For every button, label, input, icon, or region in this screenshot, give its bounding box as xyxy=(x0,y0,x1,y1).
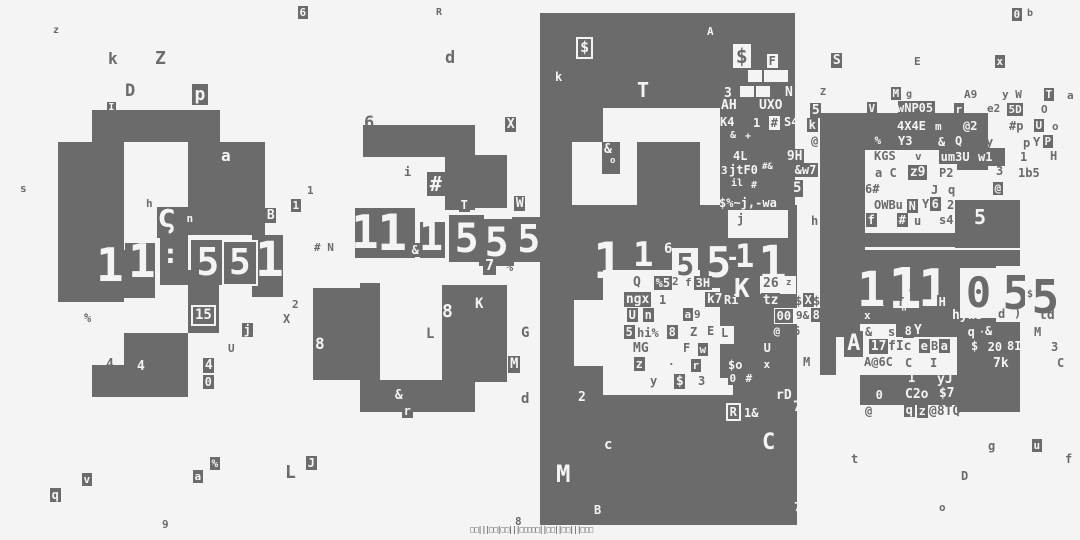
blob-1-block xyxy=(92,110,220,142)
glyph: 1 xyxy=(419,217,443,257)
blob-3-block xyxy=(637,142,700,208)
glyph: E xyxy=(707,325,714,337)
glyph: S xyxy=(875,249,882,261)
glyph: 00 xyxy=(775,309,793,323)
glyph: T xyxy=(459,198,470,212)
glyph: C2o xyxy=(905,388,928,401)
glyph: % xyxy=(210,457,220,470)
glyph: 4 xyxy=(203,358,214,373)
glyph: z xyxy=(53,26,59,36)
glyph: s xyxy=(20,183,27,194)
glyph: O xyxy=(1041,104,1048,115)
glyph: Q xyxy=(955,135,962,147)
glyph: & xyxy=(730,131,736,141)
glyph: il xyxy=(731,179,743,189)
glyph: #& xyxy=(762,163,773,172)
glyph: 1b5 xyxy=(1018,167,1040,179)
glyph: i xyxy=(404,166,411,178)
glyph: ngx xyxy=(624,292,651,307)
glyph: a xyxy=(939,339,950,353)
glyph: T xyxy=(1044,88,1054,101)
glyph: Z xyxy=(690,326,697,338)
glyph: @2 xyxy=(963,120,977,132)
glyph: 1 xyxy=(753,117,760,129)
glyph: 9& xyxy=(796,310,809,321)
glyph: % xyxy=(873,134,883,147)
glyph: b xyxy=(1027,9,1033,19)
glyph: @ xyxy=(865,405,872,417)
glyph: jtF0 xyxy=(729,164,758,176)
glyph: 1 xyxy=(96,242,124,288)
glyph: X xyxy=(803,293,814,307)
glyph: F xyxy=(882,295,889,307)
glyph: h xyxy=(146,198,153,209)
blob-4-block xyxy=(820,233,1020,247)
glyph: C xyxy=(762,432,775,454)
glyph: K4 xyxy=(720,116,734,128)
glyph: MG xyxy=(633,342,649,355)
glyph: d xyxy=(521,392,529,406)
glyph: @ xyxy=(993,182,1003,195)
glyph: W xyxy=(514,196,525,211)
glyph: Y xyxy=(1033,136,1040,148)
glyph: · xyxy=(668,359,675,370)
glyph: 9 xyxy=(162,519,169,530)
glyph: um3U xyxy=(939,150,971,164)
glyph: t xyxy=(851,453,858,465)
glyph: J xyxy=(306,456,317,470)
glyph: hi% xyxy=(637,327,659,339)
glyph: A@6C xyxy=(864,356,893,368)
glyph: 15 xyxy=(193,307,214,324)
glyph: A xyxy=(707,26,714,37)
glyph: KGS xyxy=(874,150,896,162)
glyph: 6 xyxy=(298,6,308,19)
glyph: S xyxy=(831,53,842,68)
glyph: d xyxy=(445,50,455,67)
glyph: j xyxy=(737,213,744,225)
glyph: k xyxy=(108,51,118,67)
glyph: 8 xyxy=(315,336,325,352)
glyph: # xyxy=(744,372,754,385)
glyph: OWBu xyxy=(874,199,903,211)
glyph: & xyxy=(865,326,872,338)
glyph: 1 xyxy=(377,208,407,258)
glyph: 5 xyxy=(810,103,821,118)
glyph: h xyxy=(811,215,818,227)
glyph: R xyxy=(728,405,739,419)
glyph: Y xyxy=(914,324,922,337)
glyph: #p xyxy=(1009,120,1023,132)
glyph: 3 xyxy=(1051,341,1058,353)
glyph: a xyxy=(221,148,231,164)
glyph: 2 xyxy=(578,391,586,404)
glyph: @8TQ xyxy=(929,405,960,418)
glyph: q xyxy=(50,488,61,502)
glyph: y xyxy=(986,136,993,148)
glyph: j xyxy=(242,323,253,337)
glyph: AH xyxy=(721,99,737,112)
glyph: 8 xyxy=(442,303,453,321)
glyph: $ xyxy=(813,295,820,307)
glyph: r xyxy=(954,103,964,116)
glyph: U xyxy=(762,341,773,355)
glyph: U xyxy=(1034,119,1044,132)
glyph: X xyxy=(283,313,290,325)
glyph: D xyxy=(961,470,968,482)
glyph: J xyxy=(931,184,938,196)
glyph: k7 xyxy=(705,292,724,307)
glyph: s xyxy=(888,326,895,338)
glyph: H xyxy=(937,295,948,309)
glyph: 6 xyxy=(793,325,800,337)
glyph: 7 xyxy=(793,400,801,414)
glyph: k xyxy=(807,118,818,132)
glyph: %5 xyxy=(654,276,672,290)
glyph: 1 xyxy=(908,372,915,384)
blob-2-block xyxy=(475,155,507,208)
glyph: 1 xyxy=(633,238,653,272)
glyph: o xyxy=(939,502,946,513)
glyph: I xyxy=(107,102,116,114)
glyph: 1 xyxy=(1020,151,1027,163)
glyph: U xyxy=(627,308,638,322)
glyph: & xyxy=(985,325,992,337)
glyph: M xyxy=(891,87,901,100)
white-patch xyxy=(603,378,733,395)
glyph: 0 xyxy=(728,372,738,385)
glyph: a xyxy=(1067,90,1074,101)
white-patch xyxy=(748,70,762,82)
glyph: hywJ xyxy=(952,309,983,322)
glyph: 5 xyxy=(791,180,803,197)
glyph: $ xyxy=(578,39,591,57)
glyph: $ xyxy=(674,374,685,389)
glyph: 5 xyxy=(624,325,635,339)
glyph: 1& xyxy=(744,407,758,419)
glyph: k xyxy=(555,71,562,83)
glyph: z9 xyxy=(908,165,927,180)
glyph: & xyxy=(938,136,945,148)
glyph: 1 xyxy=(351,209,379,255)
glyph: g xyxy=(988,440,995,452)
glyph: p xyxy=(192,84,208,105)
glyph: # xyxy=(427,172,445,196)
glyph: R xyxy=(436,8,442,18)
glyph: K xyxy=(475,297,483,311)
glyph: 7k xyxy=(993,357,1009,370)
glyph: L xyxy=(285,464,296,482)
glyph: y W xyxy=(1002,89,1022,100)
white-patch xyxy=(756,86,770,97)
glyph: B xyxy=(265,208,276,223)
glyph: 4L xyxy=(733,150,747,162)
glyph: # xyxy=(751,181,757,191)
white-patch xyxy=(764,70,788,82)
glyph: d xyxy=(998,308,1005,320)
glyph: I xyxy=(930,357,937,369)
glyph: V xyxy=(867,102,877,115)
glyph: z xyxy=(786,279,791,288)
glyph: @ xyxy=(772,325,782,338)
glyph: u xyxy=(914,215,921,227)
glyph: wNP05 xyxy=(897,102,933,114)
glyph: F xyxy=(767,54,778,68)
glyph: c xyxy=(466,137,473,148)
glyph: 20 xyxy=(986,340,1004,354)
glyph: # N xyxy=(314,242,334,253)
glyph: 6 xyxy=(930,197,941,211)
glyph: w1 xyxy=(978,151,992,163)
glyph: E xyxy=(914,56,921,67)
glyph: rD xyxy=(776,389,792,402)
glyph: x xyxy=(995,55,1005,68)
glyph: Y3 xyxy=(898,135,912,147)
glyph: z xyxy=(917,404,928,418)
glyph: q xyxy=(904,403,915,417)
glyph: 5 xyxy=(191,240,225,285)
glyph: e xyxy=(919,339,930,353)
glyph: x xyxy=(762,358,772,371)
glyph: 8 xyxy=(811,308,822,322)
glyph: ) xyxy=(1014,307,1021,319)
glyph: 3 xyxy=(721,165,728,176)
glyph: 1 xyxy=(255,236,284,284)
glyph: C xyxy=(905,357,912,369)
blob-3-block xyxy=(540,390,720,525)
glyph: % xyxy=(84,312,91,324)
glyph: Z xyxy=(155,50,166,68)
glyph: c xyxy=(604,438,612,452)
glyph: a C xyxy=(875,167,897,179)
glyph: yJ xyxy=(937,373,953,386)
glyph: L xyxy=(721,327,728,339)
glyph: 5 xyxy=(512,217,546,262)
glyph: e xyxy=(777,357,784,368)
glyph: + xyxy=(745,132,751,142)
glyph: & xyxy=(604,143,612,156)
glyph: 17 xyxy=(869,339,888,354)
glyph: f xyxy=(866,213,877,227)
glyph: 4 xyxy=(137,360,145,373)
glyph: B xyxy=(931,340,938,352)
glyph: p xyxy=(1023,137,1030,149)
glyph: 5D xyxy=(1007,103,1023,116)
white-patch xyxy=(740,86,754,97)
glyph: 3 xyxy=(698,375,705,387)
glyph: r xyxy=(402,404,413,418)
glyph: $ xyxy=(1027,290,1033,300)
glyph: C xyxy=(1057,357,1064,369)
glyph: a xyxy=(683,308,693,321)
glyph: : xyxy=(162,240,179,268)
glyph: z xyxy=(634,357,645,371)
glyph: M xyxy=(1034,326,1041,338)
glyph: 26 xyxy=(763,277,779,290)
glyph: 1 xyxy=(291,199,301,212)
glyph: $ xyxy=(733,44,751,68)
glyph: 5 xyxy=(974,207,986,227)
glyph: Y xyxy=(922,198,929,210)
glyph: $o xyxy=(728,359,742,371)
glyph: 8 xyxy=(786,342,793,354)
glyph: r xyxy=(891,281,897,291)
glyph: 1 xyxy=(735,240,754,272)
glyph: 2 xyxy=(292,299,299,310)
glyph: # xyxy=(897,213,908,227)
glyph: $ xyxy=(795,295,802,307)
glyph: S41 xyxy=(784,116,806,128)
glyph: Z xyxy=(820,88,826,98)
glyph: 3 xyxy=(996,165,1003,177)
glyph: e xyxy=(458,153,465,164)
glyph: fIc xyxy=(888,340,911,353)
glyph: w xyxy=(698,343,708,356)
glyph: H xyxy=(1050,150,1057,162)
glyph: x xyxy=(864,310,871,321)
glyph: q xyxy=(966,325,977,339)
blob-3-block xyxy=(572,108,603,142)
glyph: 1 xyxy=(128,238,156,284)
glyph: 8 xyxy=(667,325,678,339)
glyph: & xyxy=(410,243,421,257)
glyph: tz xyxy=(761,293,780,308)
glyph: Q xyxy=(633,276,641,289)
glyph: s4 xyxy=(939,214,953,226)
glyph: Ri xyxy=(724,294,738,306)
glyph: L xyxy=(426,327,434,341)
glyph: 6# xyxy=(865,183,879,195)
glyph: td xyxy=(1039,309,1055,322)
glyph: v xyxy=(82,473,92,486)
glyph: F xyxy=(683,342,690,354)
glyph: &w7 xyxy=(793,163,818,177)
glyph: M xyxy=(803,356,810,368)
glyph: 7 xyxy=(794,501,801,513)
glyph: 5 xyxy=(224,242,256,284)
glyph: 8I xyxy=(1007,340,1021,352)
glyph: o xyxy=(610,157,615,166)
glyph: 0 xyxy=(874,388,885,402)
glyph: X xyxy=(505,117,516,132)
glyph: U xyxy=(228,343,235,354)
blob-2-block xyxy=(360,283,380,382)
glyph: e2 xyxy=(987,103,1000,114)
barcode-strip: □□|||□□|□□|||□□□□□||□□||□□|||□□□ xyxy=(470,526,592,534)
glyph: f xyxy=(1065,453,1072,465)
glyph: 4 xyxy=(106,358,114,371)
glyph: g xyxy=(906,90,912,100)
glyph: D xyxy=(125,83,135,100)
glyph: P xyxy=(1043,135,1053,148)
glyph: 4X4E xyxy=(897,120,926,132)
glyph: 6 xyxy=(364,115,374,132)
glyph: T xyxy=(637,80,649,100)
glyph: r xyxy=(691,359,701,372)
glyph: $ xyxy=(971,340,978,352)
glyph: G xyxy=(521,326,529,340)
blob-3-block xyxy=(540,108,572,208)
glyph: # xyxy=(769,116,780,130)
glyph: & xyxy=(393,388,404,403)
glyph: n xyxy=(643,308,654,322)
glyph: " xyxy=(901,308,907,318)
glyph: 0 xyxy=(1012,8,1022,21)
glyph: u xyxy=(1032,439,1042,452)
glyph: UXO xyxy=(759,99,782,112)
glyph: m xyxy=(935,121,942,132)
glyph: 2 xyxy=(947,199,954,211)
glyph: q xyxy=(948,184,955,196)
glyph: o xyxy=(1052,121,1059,132)
glyph: M xyxy=(508,356,520,373)
noise-canvas: z6R0bA$$kZdFSExkTDp3NZMgA9y WTaAHUXOVwNP… xyxy=(0,0,1080,540)
glyph: B xyxy=(594,504,601,516)
white-patch xyxy=(574,300,604,366)
glyph: n xyxy=(185,212,195,225)
glyph: 0 xyxy=(203,375,214,389)
glyph: @ xyxy=(811,135,818,147)
glyph: 3H xyxy=(694,276,712,290)
glyph: 2 xyxy=(672,276,679,287)
glyph: % xyxy=(506,261,513,273)
glyph: $7 xyxy=(937,386,956,401)
glyph: a xyxy=(193,470,203,483)
glyph: 1 xyxy=(307,185,314,196)
glyph: N xyxy=(907,199,918,213)
glyph: 1 xyxy=(593,236,623,286)
glyph: v xyxy=(915,151,922,162)
glyph: 1 xyxy=(659,294,666,306)
glyph: A9 xyxy=(964,89,977,100)
blob-2-block xyxy=(360,380,475,412)
blob-4-block xyxy=(820,337,836,375)
glyph: o xyxy=(909,286,915,296)
glyph: ς xyxy=(157,200,176,232)
glyph: 7 xyxy=(483,257,496,275)
glyph: f xyxy=(685,277,692,288)
glyph: P2 xyxy=(939,167,953,179)
glyph: 9 xyxy=(694,309,701,320)
glyph: y xyxy=(650,375,657,387)
glyph: $%~j,-wa xyxy=(719,197,777,209)
glyph: N xyxy=(785,86,793,99)
glyph: A xyxy=(844,331,863,357)
glyph: 8 xyxy=(903,324,914,338)
glyph: M xyxy=(556,462,570,486)
